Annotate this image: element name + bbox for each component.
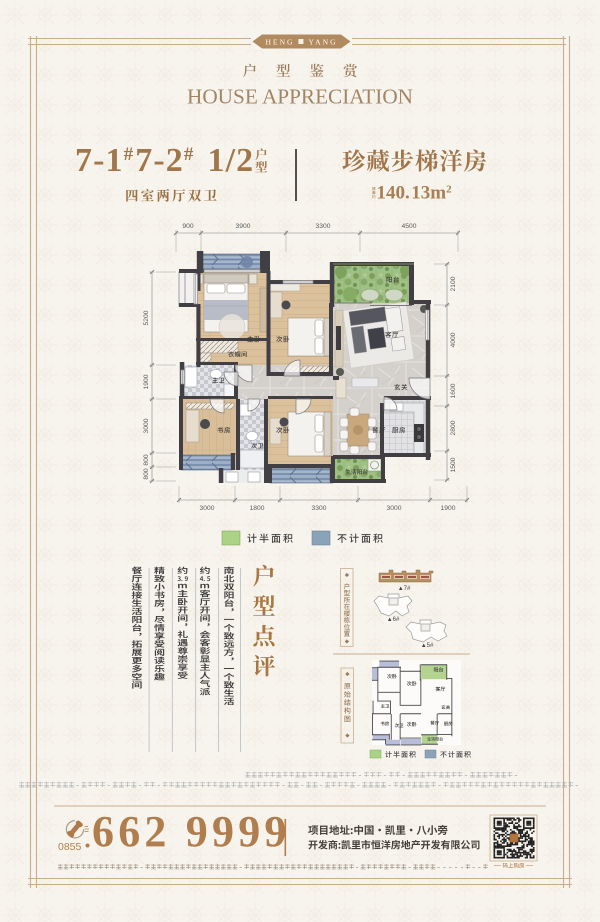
svg-text:▲7#: ▲7#: [398, 586, 411, 592]
svg-text:HOUSE APPRECIATION: HOUSE APPRECIATION: [187, 85, 413, 109]
svg-text:YANG: YANG: [308, 37, 337, 46]
svg-text:▲6#: ▲6#: [387, 617, 400, 623]
svg-text:800: 800: [143, 468, 150, 479]
svg-text:1900: 1900: [143, 374, 150, 389]
svg-text:7-1#7-2#1/2: 7-1#7-2#1/2: [75, 142, 254, 179]
svg-text:3300: 3300: [316, 223, 331, 230]
svg-text:3000: 3000: [143, 418, 150, 433]
svg-text:▲5#: ▲5#: [421, 643, 434, 649]
svg-text:140.13m2: 140.13m2: [377, 183, 453, 204]
svg-text:800: 800: [143, 454, 150, 465]
svg-text:3000: 3000: [387, 505, 402, 512]
svg-text:4000: 4000: [450, 332, 457, 347]
svg-text:3000: 3000: [200, 505, 215, 512]
svg-text:1900: 1900: [441, 505, 456, 512]
svg-text:5200: 5200: [143, 310, 150, 325]
svg-text:2800: 2800: [450, 420, 457, 435]
svg-text:662 9999: 662 9999: [92, 807, 291, 856]
svg-text:0855: 0855: [58, 841, 82, 853]
svg-text:3300: 3300: [312, 505, 327, 512]
svg-text:4500: 4500: [402, 223, 417, 230]
svg-text:900: 900: [182, 223, 193, 230]
svg-text:1600: 1600: [450, 383, 457, 398]
svg-text:1500: 1500: [450, 457, 457, 472]
svg-text:HENG: HENG: [265, 37, 294, 46]
svg-text:2100: 2100: [450, 276, 457, 291]
svg-text:3900: 3900: [236, 223, 251, 230]
svg-text:1800: 1800: [250, 505, 265, 512]
